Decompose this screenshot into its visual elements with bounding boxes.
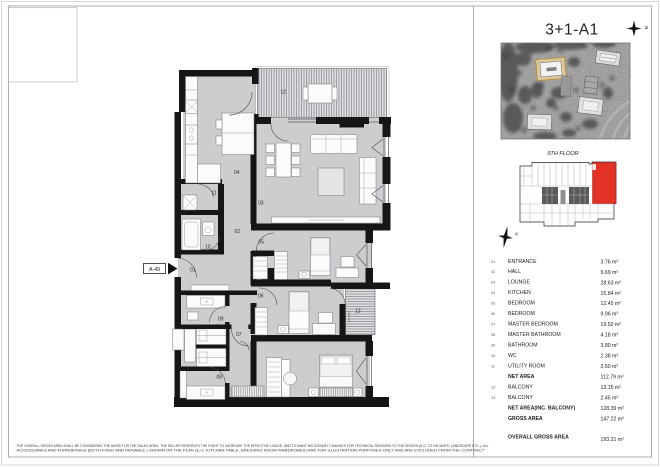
svg-text:11: 11 [491, 364, 495, 368]
svg-text:A/C UNIT: A/C UNIT [347, 310, 351, 322]
svg-text:LOUNGE: LOUNGE [508, 280, 530, 286]
svg-text:NET AREA(INC. BALCONY): NET AREA(INC. BALCONY) [508, 405, 576, 411]
svg-text:13: 13 [491, 396, 495, 400]
svg-text:3.76 m²: 3.76 m² [601, 259, 619, 265]
svg-text:13: 13 [355, 308, 361, 314]
svg-text:193.21 m²: 193.21 m² [601, 437, 625, 443]
svg-text:9.69 m²: 9.69 m² [601, 270, 619, 276]
svg-text:10: 10 [205, 245, 211, 251]
svg-text:ENTRANCE: ENTRANCE [508, 259, 537, 265]
svg-text:WC: WC [508, 353, 517, 359]
svg-text:BALCONY: BALCONY [508, 395, 533, 401]
svg-text:9.96 m²: 9.96 m² [601, 312, 619, 318]
svg-text:BATHROOM: BATHROOM [508, 342, 538, 348]
svg-text:N: N [514, 233, 519, 236]
svg-text:HALL: HALL [508, 269, 521, 275]
svg-text:2.60 m²: 2.60 m² [601, 364, 619, 370]
svg-text:4.18 m²: 4.18 m² [601, 333, 619, 339]
svg-text:09: 09 [491, 343, 495, 347]
svg-text:OVERALL GROSS AREA: OVERALL GROSS AREA [508, 435, 569, 441]
svg-text:BEDROOM: BEDROOM [508, 311, 535, 317]
svg-text:08: 08 [217, 374, 223, 380]
svg-text:08: 08 [491, 333, 495, 337]
svg-text:BALCONY: BALCONY [508, 384, 533, 390]
svg-text:02: 02 [491, 270, 495, 274]
svg-text:28.63 m²: 28.63 m² [601, 280, 622, 286]
svg-text:15.84 m²: 15.84 m² [601, 291, 622, 297]
svg-text:09: 09 [218, 316, 224, 322]
svg-text:N: N [644, 26, 649, 29]
svg-text:04: 04 [491, 291, 495, 295]
svg-text:07: 07 [491, 323, 495, 327]
svg-text:112.79 m²: 112.79 m² [601, 374, 624, 380]
svg-text:05: 05 [491, 302, 495, 306]
svg-text:03: 03 [258, 200, 264, 206]
svg-text:NET AREA: NET AREA [508, 374, 535, 380]
svg-text:12.45 m²: 12.45 m² [601, 301, 622, 307]
svg-text:19.50 m²: 19.50 m² [601, 322, 622, 328]
svg-text:06: 06 [258, 293, 264, 299]
svg-text:A-49: A-49 [149, 267, 160, 273]
svg-text:01: 01 [491, 260, 495, 264]
svg-text:2.38 m²: 2.38 m² [601, 354, 619, 360]
svg-text:3.80 m²: 3.80 m² [601, 343, 619, 349]
svg-text:ACCESSORIES AND FURNISHINGS (B: ACCESSORIES AND FURNISHINGS (BOTH FIXED … [17, 447, 486, 452]
svg-text:128.39 m²: 128.39 m² [601, 406, 625, 412]
svg-text:05: 05 [259, 239, 265, 245]
svg-text:02: 02 [235, 229, 241, 235]
svg-text:12: 12 [491, 385, 495, 389]
svg-text:06: 06 [491, 312, 495, 316]
svg-text:12: 12 [281, 89, 287, 95]
svg-text:BEDROOM: BEDROOM [508, 301, 535, 307]
svg-text:03: 03 [491, 281, 495, 285]
svg-text:13.15 m²: 13.15 m² [601, 385, 622, 391]
svg-text:9TH FLOOR: 9TH FLOOR [547, 151, 578, 157]
svg-text:2.45 m²: 2.45 m² [601, 395, 619, 401]
svg-text:07: 07 [236, 332, 242, 338]
svg-text:04: 04 [234, 170, 240, 176]
svg-text:MASTER BEDROOM: MASTER BEDROOM [508, 322, 558, 328]
svg-text:GROSS AREA: GROSS AREA [508, 416, 543, 422]
svg-text:KITCHEN: KITCHEN [508, 290, 531, 296]
svg-text:MASTER BATHROOM: MASTER BATHROOM [508, 332, 561, 338]
svg-text:147.22 m²: 147.22 m² [601, 416, 625, 422]
svg-text:11: 11 [212, 190, 217, 196]
svg-text:UTILITY ROOM: UTILITY ROOM [508, 363, 545, 369]
svg-text:10: 10 [491, 354, 495, 358]
svg-text:3+1-A1: 3+1-A1 [545, 22, 598, 39]
svg-text:01: 01 [190, 267, 196, 273]
